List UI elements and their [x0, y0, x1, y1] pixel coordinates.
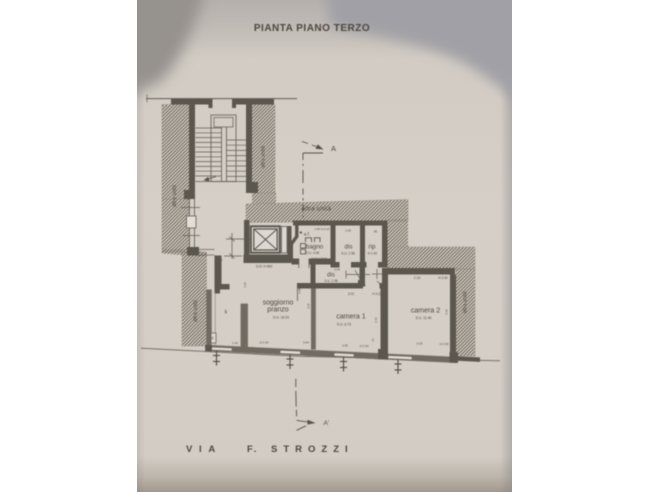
svg-text:dis: dis	[345, 244, 353, 251]
svg-text:altra unità: altra unità	[302, 207, 332, 213]
svg-text:altra unità: altra unità	[193, 300, 199, 322]
svg-text:1.60 H 0.10: 1.60 H 0.10	[315, 227, 330, 231]
svg-text:S.U. 11.46: S.U. 11.46	[416, 316, 432, 320]
svg-text:S.U. 6.75: S.U. 6.75	[337, 323, 351, 327]
svg-text:80: 80	[374, 230, 378, 234]
svg-text:dis: dis	[327, 273, 335, 279]
svg-text:camera 1: camera 1	[336, 314, 365, 321]
svg-text:S.U. 18.03: S.U. 18.03	[273, 316, 289, 320]
svg-text:3.02: 3.02	[348, 292, 354, 296]
svg-text:1.05: 1.05	[243, 282, 247, 288]
svg-text:H 1.40: H 1.40	[368, 252, 378, 256]
svg-text:camera 2: camera 2	[411, 308, 440, 315]
svg-text:70: 70	[371, 338, 375, 342]
svg-text:3.04: 3.04	[303, 341, 309, 345]
svg-text:k: k	[225, 310, 228, 316]
svg-text:A: A	[331, 144, 336, 153]
svg-text:2.18: 2.18	[414, 276, 420, 280]
svg-text:S.U. 4.98: S.U. 4.98	[306, 251, 320, 255]
svg-text:3.16: 3.16	[445, 309, 449, 315]
svg-text:altra unità: altra unità	[463, 291, 469, 313]
svg-text:H 3.23: H 3.23	[372, 292, 382, 296]
svg-text:3.01 H.980: 3.01 H.980	[256, 265, 273, 269]
svg-text:2.95: 2.95	[342, 344, 348, 348]
svg-text:H 3.40: H 3.40	[438, 276, 448, 280]
svg-text:F.: F.	[247, 444, 258, 455]
svg-text:2.05: 2.05	[334, 268, 340, 272]
svg-text:bagno: bagno	[306, 244, 324, 251]
svg-text:S.U. 2.98: S.U. 2.98	[324, 279, 338, 283]
svg-text:S.U. 2.98: S.U. 2.98	[341, 252, 355, 256]
svg-text:2.98: 2.98	[297, 288, 301, 294]
svg-text:VIA: VIA	[186, 444, 222, 455]
svg-text:2.70: 2.70	[374, 317, 378, 323]
svg-text:soggiorno: soggiorno	[263, 300, 294, 307]
svg-text:H 2.30: H 2.30	[440, 342, 449, 346]
svg-text:3.03: 3.03	[417, 342, 423, 346]
svg-text:PIANTA PIANO TERZO: PIANTA PIANO TERZO	[254, 23, 370, 34]
svg-text:altra unità: altra unità	[261, 146, 267, 168]
svg-text:H 2.30: H 2.30	[360, 344, 369, 348]
svg-text:altra unità: altra unità	[172, 185, 178, 207]
svg-text:A': A'	[324, 420, 330, 427]
svg-text:1.41: 1.41	[232, 341, 238, 345]
svg-text:rip: rip	[369, 244, 376, 251]
svg-text:2.05: 2.05	[307, 303, 311, 309]
svg-text:H 2.30: H 2.30	[260, 341, 269, 345]
svg-text:STROZZI: STROZZI	[271, 444, 354, 455]
svg-text:pranzo: pranzo	[267, 307, 289, 314]
svg-text:1.00: 1.00	[345, 229, 351, 233]
svg-text:a.f.: a.f.	[304, 232, 310, 237]
